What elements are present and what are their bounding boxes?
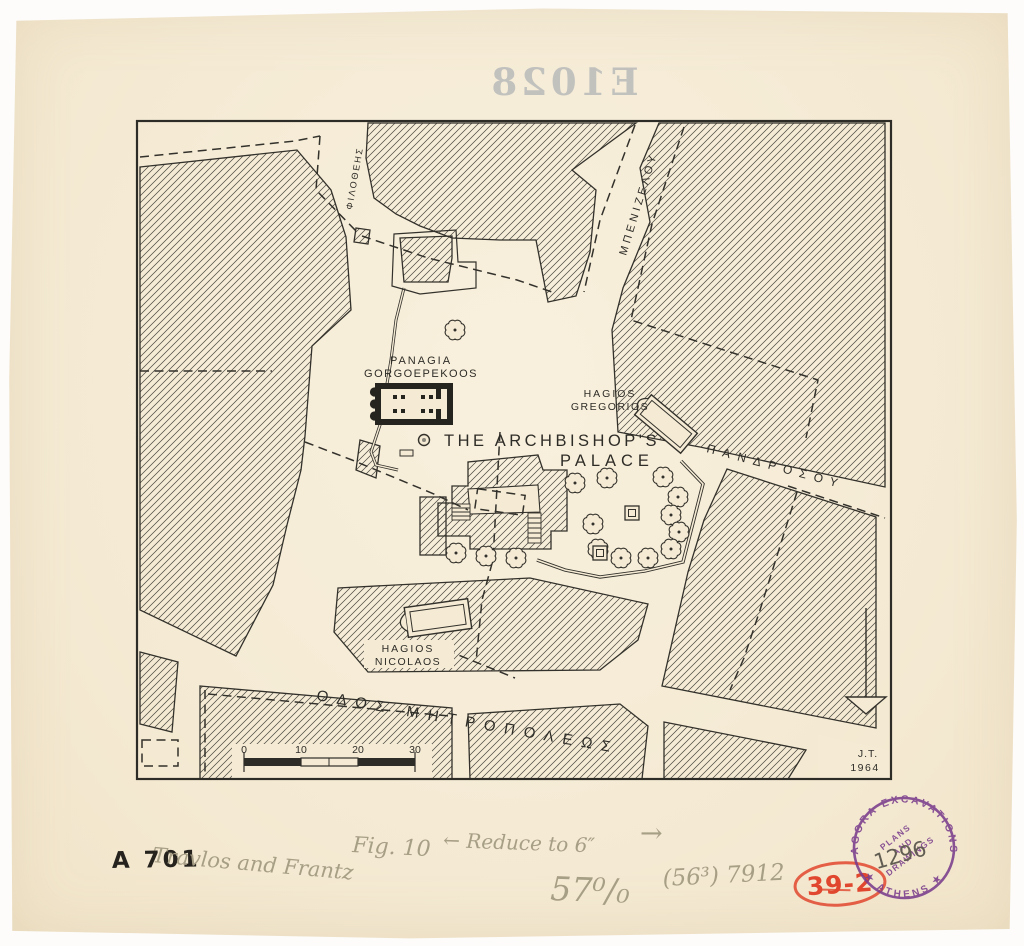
palace-label-line1: THE ARCHBISHOP'S <box>444 432 660 450</box>
signature-initials: J.T. <box>858 748 878 760</box>
scale-tick-10: 10 <box>295 744 307 756</box>
red-number-text: 39-2 <box>806 868 874 902</box>
gregorios-label-line1: HAGIOS <box>584 388 637 400</box>
church-label-line2: GORGOEPEKOOS <box>364 368 478 380</box>
block-south-right <box>664 722 806 779</box>
city-blocks <box>140 123 885 779</box>
pencil-arrow-right: → <box>640 818 663 849</box>
church-label-line1: PANAGIA <box>390 355 452 367</box>
nicolaos-label-line2: NICOLAOS <box>375 656 441 668</box>
block-church-south-piece <box>356 440 380 478</box>
pencil-reduce-note: ← Reduce to 6″ <box>443 828 596 857</box>
palace-label-line2: PALACE <box>560 452 654 470</box>
pencil-figure: Fig. 10 <box>351 833 432 862</box>
bleed-through-number: E1028 <box>487 60 638 104</box>
block-plaza-north-piece <box>400 236 452 282</box>
scale-tick-20: 20 <box>352 744 364 756</box>
pencil-print-numbers: (56³) 7912 <box>662 860 785 892</box>
well-symbol <box>400 435 430 457</box>
nicolaos-label-line1: HAGIOS <box>382 643 435 655</box>
panagia-church-plan <box>370 383 453 425</box>
street-philotheis: ΦΙΛΟΘΕΗΣ <box>344 146 365 210</box>
scanned-sheet: PANAGIA GORGOEPEKOOS HAGIOS GREGORIOS TH… <box>0 0 1024 946</box>
pencil-authors: Travlos and Frantz <box>152 843 356 885</box>
archbishops-palace-building <box>438 455 567 549</box>
pencil-percent: 57⁰/₀ <box>550 869 631 911</box>
gregorios-label-line2: GREGORIOS <box>571 401 649 413</box>
block-southwest-sliver <box>140 652 178 732</box>
planter-icon <box>625 506 639 520</box>
annotations: A 701 Travlos and Frantz Fig. 10 ← Reduc… <box>112 818 786 911</box>
corner-dashed-plot <box>142 740 178 766</box>
tree-icon <box>445 320 465 340</box>
block-east <box>662 469 876 728</box>
site-plan-drawing: PANAGIA GORGOEPEKOOS HAGIOS GREGORIOS TH… <box>0 0 1024 946</box>
signature-year: 1964 <box>850 762 879 774</box>
block-northwest <box>140 150 351 656</box>
